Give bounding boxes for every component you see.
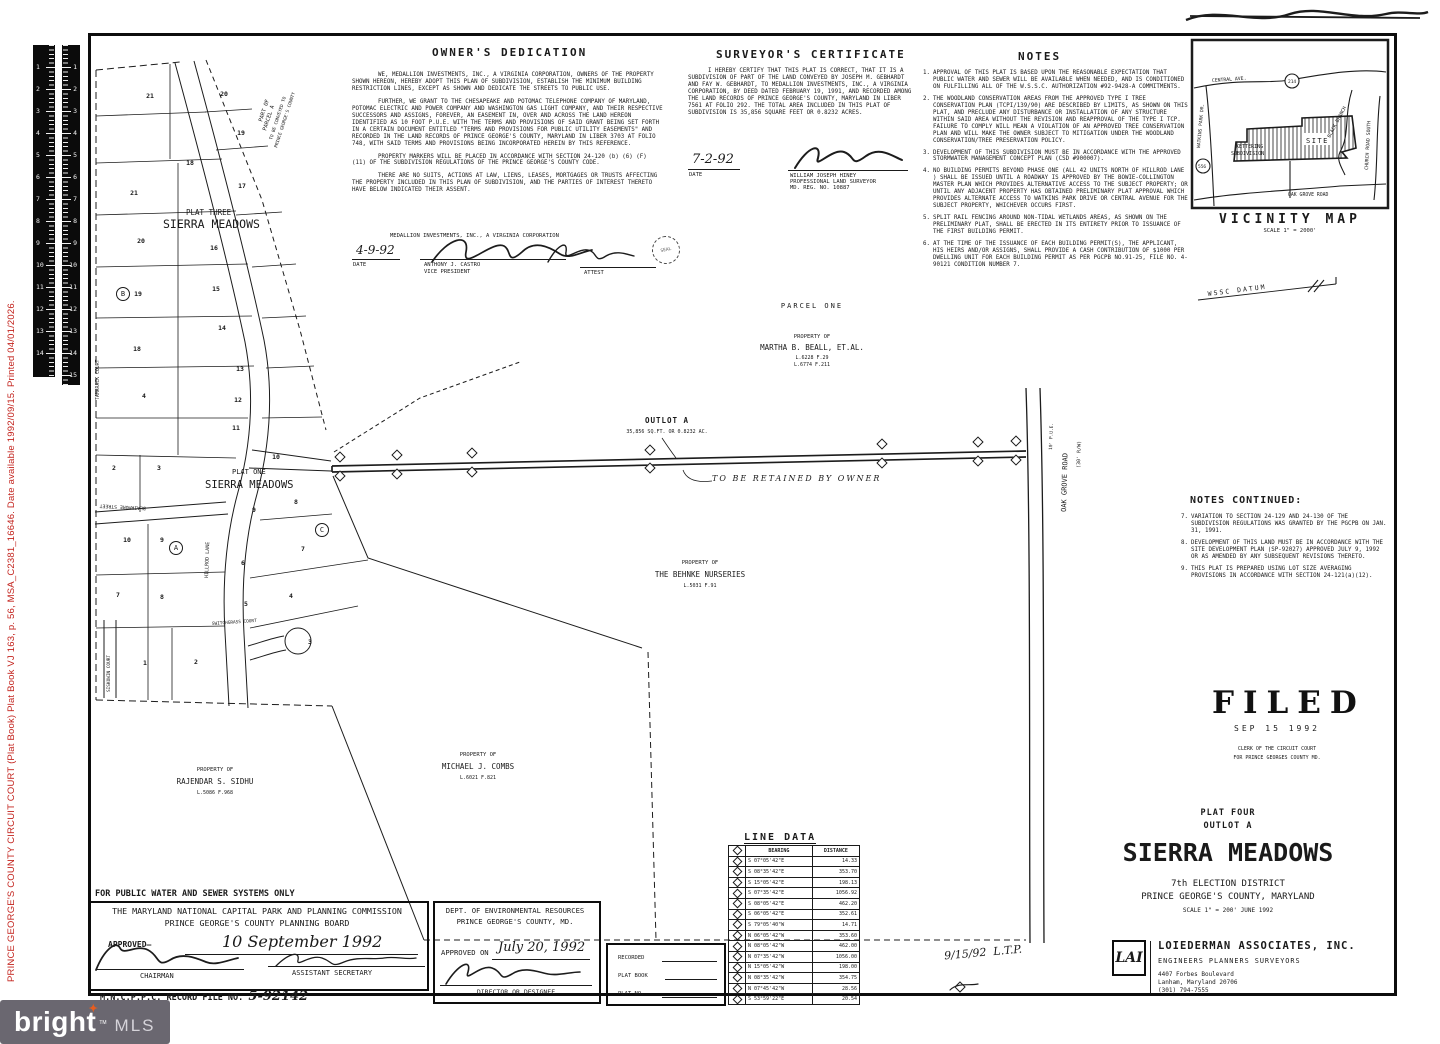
dedication-paragraph: THERE ARE NO SUITS, ACTIONS AT LAW, LIEN…	[352, 173, 664, 194]
mncppc-name-line: THE MARYLAND NATIONAL CAPITAL PARK AND P…	[92, 906, 422, 916]
line-data-row: N 07°45'42"W28.56	[729, 983, 860, 994]
distance-cell: 20.54	[812, 994, 859, 1005]
bright-star-icon: ✦	[89, 1002, 99, 1015]
plat-book-blank	[665, 979, 717, 980]
der-approved-label: APPROVED ON	[441, 948, 489, 957]
line-symbol-cell	[729, 877, 746, 888]
lot-number: 3	[157, 464, 161, 472]
diamond-icon	[732, 973, 742, 983]
signature-underline	[420, 259, 566, 260]
street-tamarack-court: TAMARACK COURT	[95, 359, 101, 400]
line-symbol-cell	[729, 951, 746, 962]
lot-number: 18	[133, 345, 141, 353]
note-number: 1.	[920, 70, 930, 91]
beall-liber-folio-2: L.6774 F.211	[732, 362, 892, 368]
note-text: APPROVAL OF THIS PLAT IS BASED UPON THE …	[933, 70, 1188, 91]
lot-number: 19	[237, 129, 245, 137]
note-number: 5.	[920, 215, 930, 236]
attest-label: ATTEST	[584, 270, 604, 276]
beall-owner-name: MARTHA B. BEALL, ET.AL.	[732, 343, 892, 352]
lai-logo: LAI	[1112, 940, 1146, 976]
beall-property-of: PROPERTY OF	[732, 334, 892, 340]
lot-number: 4	[289, 592, 293, 600]
lot-number: 7	[301, 545, 305, 553]
filed-date: SEP 15 1992	[1212, 724, 1342, 733]
filed-stamp: FILED	[1212, 685, 1366, 721]
distance-cell: 353.70	[812, 867, 859, 878]
mncppc-approved-label: APPROVED–	[108, 940, 151, 949]
lot-number: 20	[220, 90, 228, 98]
lot-number: 5	[244, 600, 248, 608]
chairman-label: CHAIRMAN	[140, 972, 174, 980]
bearing-cell: S 79°05'40"W	[746, 920, 813, 931]
bright-word: bright	[14, 1006, 96, 1037]
bearing-cell: S 08°35'42"E	[746, 867, 813, 878]
line-data-row: S 06°05'42"E352.61	[729, 909, 860, 920]
signer-title: VICE PRESIDENT	[424, 269, 470, 275]
title-plat-four: PLAT FOUR	[1128, 808, 1328, 818]
note-number: 3.	[920, 150, 930, 164]
distance-cell: 462.20	[812, 898, 859, 909]
note-number: 9.	[1178, 566, 1188, 580]
der-director-label: DIRECTOR OR DESIGNEE	[440, 988, 592, 996]
bearing-cell: S 53°59'22"E	[746, 994, 813, 1005]
lot-number: 8	[160, 593, 164, 601]
lot-number: 21	[130, 189, 138, 197]
lot-number: 9	[160, 536, 164, 544]
title-outlot-a: OUTLOT A	[1128, 821, 1328, 831]
distance-cell: 14.33	[812, 856, 859, 867]
der-signature-underline	[440, 985, 592, 986]
diamond-icon	[732, 867, 742, 877]
distance-cell: 14.71	[812, 920, 859, 931]
surveyors-certificate-body: I HEREBY CERTIFY THAT THIS PLAT IS CORRE…	[688, 68, 916, 117]
lot-number: 14	[218, 324, 226, 332]
vicinity-map-scale: SCALE 1" = 2000'	[1192, 228, 1388, 234]
block-letter: A	[169, 541, 183, 555]
line-data-row: N 08°05'42"W462.00	[729, 941, 860, 952]
line-data-row: N 15°05'42"W198.00	[729, 962, 860, 973]
notes-continued-list: 7.VARIATION TO SECTION 24-129 AND 24-130…	[1178, 514, 1388, 585]
line-data-distance-header: DISTANCE	[812, 846, 859, 857]
lot-number: 13	[236, 365, 244, 373]
line-symbol-cell	[729, 994, 746, 1005]
chairman-underline	[96, 969, 244, 970]
lot-number: 19	[134, 290, 142, 298]
plat-no-blank	[662, 997, 717, 998]
distance-cell: 1056.00	[812, 951, 859, 962]
note-text: DEVELOPMENT OF THIS SUBDIVISION MUST BE …	[933, 150, 1188, 164]
line-data-bearing-header: BEARING	[746, 846, 813, 857]
firm-divider	[1150, 941, 1151, 993]
surveyor-registration: MD. REG. NO. 10887	[790, 185, 850, 191]
notes-title: NOTES	[1018, 50, 1061, 63]
diamond-icon	[732, 931, 742, 941]
record-file-number: 5-92142	[248, 989, 308, 1004]
owners-dedication-title: OWNER'S DEDICATION	[432, 46, 587, 59]
line-symbol-cell	[729, 941, 746, 952]
distance-cell: 198.13	[812, 877, 859, 888]
outlot-area-label: 35,856 SQ.FT. OR 0.8232 AC.	[592, 429, 742, 435]
firm-name: LOIEDERMAN ASSOCIATES, INC.	[1158, 940, 1356, 952]
sidhu-owner-name: RAJENDAR S. SIDHU	[140, 777, 290, 786]
der-name-line: DEPT. OF ENVIRONMENTAL RESOURCES	[436, 906, 594, 915]
lot-number: 2	[194, 658, 198, 666]
sidhu-liber-folio: L.5086 F.968	[140, 790, 290, 796]
line-data-row: S 07°35'42"E1056.92	[729, 888, 860, 899]
assistant-secretary-underline	[268, 966, 425, 967]
outlot-a-label: OUTLOT A	[612, 416, 722, 425]
lot-number: 2	[112, 464, 116, 472]
diamond-icon	[732, 899, 742, 909]
filed-clerk-line-2: FOR PRINCE GEORGES COUNTY MD.	[1192, 755, 1362, 761]
diamond-icon	[732, 952, 742, 962]
distance-cell: 28.56	[812, 983, 859, 994]
behnke-owner-name: THE BEHNKE NURSERIES	[620, 570, 780, 579]
bearing-cell: N 07°35'42"W	[746, 951, 813, 962]
bearing-cell: N 06°05'42"W	[746, 930, 813, 941]
vicinity-oak-grove-road: OAK GROVE ROAD	[1288, 192, 1329, 198]
plat-no-label: PLAT NO.	[618, 991, 645, 997]
block-letter: B	[116, 287, 130, 301]
note-item: 2.THE WOODLAND CONSERVATION AREAS FROM T…	[920, 96, 1188, 145]
seal-label: SEAL	[660, 246, 672, 253]
lot-number: 21	[146, 92, 154, 100]
distance-cell: 462.00	[812, 941, 859, 952]
diamond-icon	[732, 888, 742, 898]
line-symbol-cell	[729, 930, 746, 941]
combs-liber-folio: L.6021 F.821	[403, 775, 553, 781]
lot-number: 16	[210, 244, 218, 252]
bearing-cell: S 06°05'42"E	[746, 909, 813, 920]
mncppc-board-line: PRINCE GEORGE'S COUNTY PLANNING BOARD	[92, 918, 422, 928]
line-data-row: S 53°59'22"E20.54	[729, 994, 860, 1005]
title-sierra-meadows: SIERRA MEADOWS	[1098, 838, 1358, 867]
diamond-icon	[732, 941, 742, 951]
lot-number: 18	[186, 159, 194, 167]
plat-one-label-2: SIERRA MEADOWS	[205, 479, 294, 491]
lot-number: 4	[142, 392, 146, 400]
vicinity-route-214: 214	[1288, 79, 1296, 85]
public-water-sewer-note: FOR PUBLIC WATER AND SEWER SYSTEMS ONLY	[95, 889, 295, 899]
line-data-row: N 08°35'42"W354.75	[729, 973, 860, 984]
title-election-district: 7th ELECTION DISTRICT	[1128, 879, 1328, 889]
line-data-symbol-header	[729, 846, 746, 857]
lot-number: 15	[212, 285, 220, 293]
diamond-icon	[732, 994, 742, 1004]
signer-name: ANTHONY J. CASTRO	[424, 262, 480, 268]
lot-number: 3	[308, 638, 312, 646]
pue-label: 10' P.U.E.	[1048, 423, 1055, 450]
notes-list: 1.APPROVAL OF THIS PLAT IS BASED UPON TH…	[920, 70, 1188, 274]
hand-note-initials: L.T.P.	[993, 943, 1023, 958]
line-data-row: S 07°05'42"E14.33	[729, 856, 860, 867]
vicinity-kettering-2: SUBDIVISION	[1231, 151, 1264, 157]
lot-number: 20	[137, 237, 145, 245]
recorded-blank	[662, 961, 717, 962]
attest-underline	[580, 267, 656, 268]
firm-address-2: Lanham, Maryland 20706	[1158, 979, 1237, 986]
notes-continued-title: NOTES CONTINUED:	[1190, 495, 1302, 506]
note-text: NO BUILDING PERMITS BEYOND PHASE ONE (AL…	[933, 168, 1188, 210]
note-text: DEVELOPMENT OF THIS LAND MUST BE IN ACCO…	[1191, 540, 1388, 561]
vicinity-kettering-1: KETTERING	[1236, 144, 1263, 150]
surveyor-signature-underline	[788, 170, 908, 171]
oak-grove-rw-label: (30' R/W)	[1076, 441, 1083, 468]
diamond-icon	[732, 962, 742, 972]
approval-date-underline	[185, 954, 418, 955]
line-symbol-cell	[729, 867, 746, 878]
trademark-symbol: TM	[99, 1020, 106, 1026]
distance-cell: 354.75	[812, 973, 859, 984]
brightmls-logo: bright✦ TM MLS	[0, 1000, 170, 1044]
bearing-cell: S 08°05'42"E	[746, 898, 813, 909]
dedication-paragraph: PROPERTY MARKERS WILL BE PLACED IN ACCOR…	[352, 154, 664, 168]
note-item: 9.THIS PLAT IS PREPARED USING LOT SIZE A…	[1178, 566, 1388, 580]
note-item: 8.DEVELOPMENT OF THIS LAND MUST BE IN AC…	[1178, 540, 1388, 561]
lot-number: 6	[241, 559, 245, 567]
plat-book-label: PLAT BOOK	[618, 973, 648, 979]
note-number: 2.	[920, 96, 930, 145]
bearing-cell: N 08°35'42"W	[746, 973, 813, 984]
oak-grove-road-label: OAK GROVE ROAD	[1060, 453, 1070, 512]
street-siskowin-court: SISKOWIN COURT	[106, 655, 112, 692]
note-item: 1.APPROVAL OF THIS PLAT IS BASED UPON TH…	[920, 70, 1188, 91]
lot-number: 1	[143, 659, 147, 667]
line-symbol-cell	[729, 983, 746, 994]
bearing-cell: N 15°05'42"W	[746, 962, 813, 973]
lot-number: 9	[252, 506, 256, 514]
vicinity-site-label: SITE	[1306, 137, 1329, 145]
note-number: 8.	[1178, 540, 1188, 561]
line-symbol-cell	[729, 962, 746, 973]
bearing-cell: N 08°05'42"W	[746, 941, 813, 952]
recorded-box: RECORDED PLAT BOOK PLAT NO.	[606, 943, 726, 1006]
line-data-row: S 79°05'40"W14.71	[729, 920, 860, 931]
note-number: 7.	[1178, 514, 1188, 535]
retained-by-owner-note: TO BE RETAINED BY OWNER	[712, 474, 881, 483]
note-item: 4.NO BUILDING PERMITS BEYOND PHASE ONE (…	[920, 168, 1188, 210]
firm-address-1: 4407 Forbes Boulevard	[1158, 971, 1234, 978]
bright-wordmark: bright✦	[14, 1006, 96, 1038]
diamond-icon	[732, 878, 742, 888]
note-text: AT THE TIME OF THE ISSUANCE OF EACH BUIL…	[933, 241, 1188, 269]
firm-roles: ENGINEERS PLANNERS SURVEYORS	[1158, 957, 1301, 965]
note-text: THE WOODLAND CONSERVATION AREAS FROM THE…	[933, 96, 1188, 145]
vicinity-map-title: VICINITY MAP	[1192, 212, 1388, 227]
combs-owner-name: MICHAEL J. COMBS	[403, 762, 553, 771]
lot-number: 7	[116, 591, 120, 599]
date-underline	[352, 259, 400, 260]
firm-phone: (301) 794-7555	[1158, 987, 1209, 994]
line-symbol-cell	[729, 898, 746, 909]
diamond-icon	[732, 920, 742, 930]
street-blairmore: BLAIRMORE STREET	[99, 502, 146, 510]
title-scale-date: SCALE 1" = 200' JUNE 1992	[1128, 907, 1328, 914]
street-switchgrass-court: SWITCHGRASS COURT	[212, 618, 258, 627]
bearing-cell: N 07°45'42"W	[746, 983, 813, 994]
line-data-row: S 15°05'42"E198.13	[729, 877, 860, 888]
plat-three-label-2: SIERRA MEADOWS	[163, 217, 260, 231]
assistant-secretary-label: ASSISTANT SECRETARY	[292, 969, 372, 977]
surveyors-certificate-title: SURVEYOR'S CERTIFICATE	[716, 48, 906, 61]
title-county: PRINCE GEORGE'S COUNTY, MARYLAND	[1098, 892, 1358, 902]
lot-number: 12	[234, 396, 242, 404]
date-underline	[688, 169, 740, 170]
note-text: VARIATION TO SECTION 24-129 AND 24-130 O…	[1191, 514, 1388, 535]
diamond-icon	[732, 846, 742, 856]
der-approval-date: July 20, 1992	[498, 940, 585, 955]
diamond-icon	[732, 984, 742, 994]
behnke-property-of: PROPERTY OF	[620, 560, 780, 566]
line-data-table: BEARING DISTANCE S 07°05'42"E14.33S 08°3…	[728, 845, 860, 1005]
mncppc-approval-date: 10 September 1992	[222, 932, 382, 951]
note-number: 4.	[920, 168, 930, 210]
lai-logo-text: LAI	[1115, 950, 1142, 966]
dedication-paragraph: WE, MEDALLION INVESTMENTS, INC., A VIRGI…	[352, 72, 664, 93]
lot-number: 8	[294, 498, 298, 506]
block-letter: C	[315, 523, 329, 537]
line-data-title: LINE DATA	[744, 832, 816, 844]
line-data-row: S 08°05'42"E462.20	[729, 898, 860, 909]
distance-cell: 1056.92	[812, 888, 859, 899]
note-item: 5.SPLIT RAIL FENCING AROUND NON-TIDAL WE…	[920, 215, 1188, 236]
bearing-cell: S 07°05'42"E	[746, 856, 813, 867]
note-item: 6.AT THE TIME OF THE ISSUANCE OF EACH BU…	[920, 241, 1188, 269]
behnke-liber-folio: L.5031 F.91	[620, 583, 780, 589]
der-date-underline	[492, 959, 590, 960]
certificate-date-script: 7-2-92	[692, 152, 734, 167]
filed-clerk-line-1: CLERK OF THE CIRCUIT COURT	[1192, 746, 1362, 752]
diamond-icon	[732, 909, 742, 919]
plat-three-label-1: PLAT THREE	[186, 208, 232, 217]
distance-cell: 198.00	[812, 962, 859, 973]
note-text: SPLIT RAIL FENCING AROUND NON-TIDAL WETL…	[933, 215, 1188, 236]
street-hillrod-lane: HILLROD LANE	[204, 542, 211, 578]
line-symbol-cell	[729, 973, 746, 984]
plat-sheet: PRINCE GEORGE'S COUNTY CIRCUIT COURT (Pl…	[0, 0, 1440, 1044]
combs-property-of: PROPERTY OF	[403, 752, 553, 758]
distance-cell: 353.60	[812, 930, 859, 941]
recorded-label: RECORDED	[618, 955, 645, 961]
distance-cell: 352.61	[812, 909, 859, 920]
dedication-date-label: DATE	[353, 262, 366, 268]
bearing-cell: S 15°05'42"E	[746, 877, 813, 888]
dedication-paragraph: FURTHER, WE GRANT TO THE CHESAPEAKE AND …	[352, 99, 664, 148]
parcel-one-label: PARCEL ONE	[752, 302, 872, 310]
diamond-icon	[732, 856, 742, 866]
beall-liber-folio-1: L.6228 F.29	[732, 355, 892, 361]
line-symbol-cell	[729, 888, 746, 899]
line-data-row: N 06°05'42"W353.60	[729, 930, 860, 941]
note-item: 7.VARIATION TO SECTION 24-129 AND 24-130…	[1178, 514, 1388, 535]
der-county-line: PRINCE GEORGE'S COUNTY, MD.	[436, 917, 594, 926]
lot-number: 10	[123, 536, 131, 544]
corporation-line: MEDALLION INVESTMENTS, INC., A VIRGINIA …	[390, 233, 559, 239]
lot-number: 11	[232, 424, 240, 432]
lot-number: 10	[272, 453, 280, 461]
dedication-date-script: 4-9-92	[356, 243, 395, 257]
note-text: THIS PLAT IS PREPARED USING LOT SIZE AVE…	[1191, 566, 1388, 580]
line-data-header-row: BEARING DISTANCE	[729, 846, 860, 857]
mls-word: MLS	[115, 1016, 156, 1036]
sidhu-property-of: PROPERTY OF	[140, 767, 290, 773]
lot-number: 17	[238, 182, 246, 190]
line-data-row: S 08°35'42"E353.70	[729, 867, 860, 878]
note-number: 6.	[920, 241, 930, 269]
line-data-row: N 07°35'42"W1056.00	[729, 951, 860, 962]
plat-one-label-1: PLAT ONE	[232, 468, 266, 476]
line-symbol-cell	[729, 920, 746, 931]
bearing-cell: S 07°35'42"E	[746, 888, 813, 899]
owners-dedication-body: WE, MEDALLION INVESTMENTS, INC., A VIRGI…	[352, 72, 664, 200]
vicinity-route-556: 556	[1198, 164, 1206, 170]
note-item: 3.DEVELOPMENT OF THIS SUBDIVISION MUST B…	[920, 150, 1188, 164]
certificate-date-label: DATE	[689, 172, 702, 178]
